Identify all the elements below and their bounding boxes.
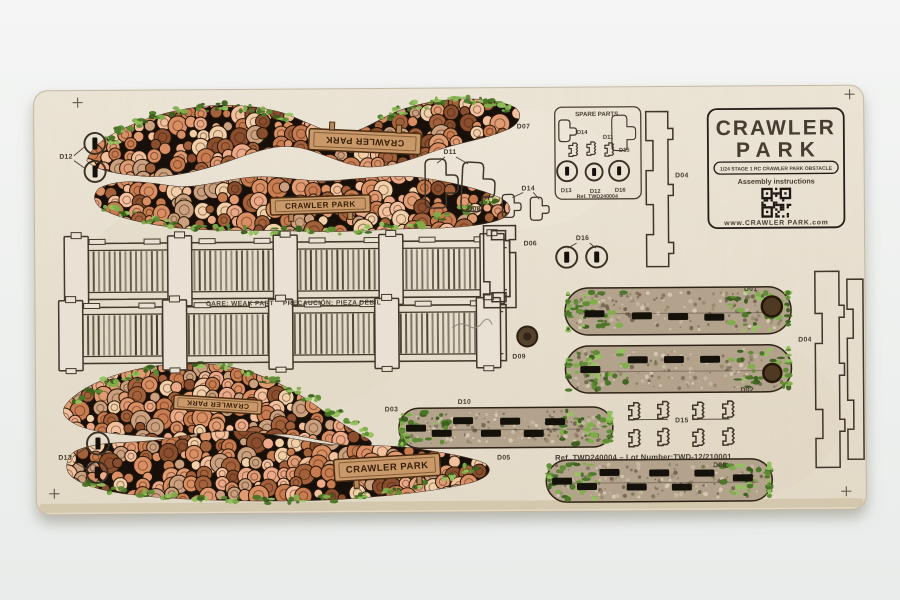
plank-d01 [564, 287, 793, 336]
part-label-d05: D05 [497, 455, 510, 462]
plank-d08 [545, 459, 774, 503]
part-label-d13: D13 [58, 455, 71, 462]
part-label-d01: D01 [744, 286, 757, 293]
logo-park: PARK [736, 138, 822, 162]
spare-label-d13: D13 [561, 188, 572, 194]
part-label-d15: D15 [675, 417, 688, 424]
part-label-d08-pile: D08 [467, 206, 480, 213]
website-text: www.CRAWLER PARK.com [723, 219, 828, 227]
spare-label-d14: D14 [577, 130, 588, 136]
knot-hole [517, 326, 537, 346]
scale-badge: 1/24 STAGE 1 RC CRAWLER PARK OBSTACLE [720, 166, 833, 173]
assembly-instructions-label: Assembly instructions [738, 176, 815, 186]
plank-d02 [564, 345, 793, 394]
part-label-d09: D09 [512, 353, 525, 360]
part-label-d12: D12 [59, 154, 72, 161]
logo-crawler: CRAWLER [716, 116, 836, 140]
reference-lot-line: Ref. TWD240004 – Lot Number:TWD-12/21000… [555, 452, 732, 462]
spare-parts-ref: Ref. TWD240004 [577, 194, 618, 200]
plank-d10 [397, 407, 614, 449]
part-label-d06: D06 [524, 240, 537, 247]
kit-sheet-photo: CRAWLER PARK CRAWLER PARK CRAWLER PARK [0, 0, 900, 600]
part-label-d03: D03 [385, 406, 398, 413]
part-label-d04-right: D04 [798, 336, 811, 343]
warning-text-en: CARE: WEAK PART [206, 300, 274, 307]
spare-label-d11: D11 [603, 135, 614, 141]
part-label-d10: D10 [458, 399, 471, 406]
part-label-d02: D02 [741, 387, 754, 394]
spare-parts-title: SPARE PARTS [575, 111, 618, 118]
spare-label-d15: D15 [619, 148, 630, 154]
part-label-d11: D11 [443, 149, 456, 156]
part-label-d16: D16 [576, 235, 589, 242]
product-photo: CRAWLER PARK CRAWLER PARK CRAWLER PARK [0, 0, 900, 600]
part-label-d07: D07 [517, 123, 530, 130]
part-label-d08-plank: D08 [713, 462, 726, 469]
part-label-d14: D14 [522, 185, 535, 192]
part-label-d04-top: D04 [675, 172, 688, 179]
